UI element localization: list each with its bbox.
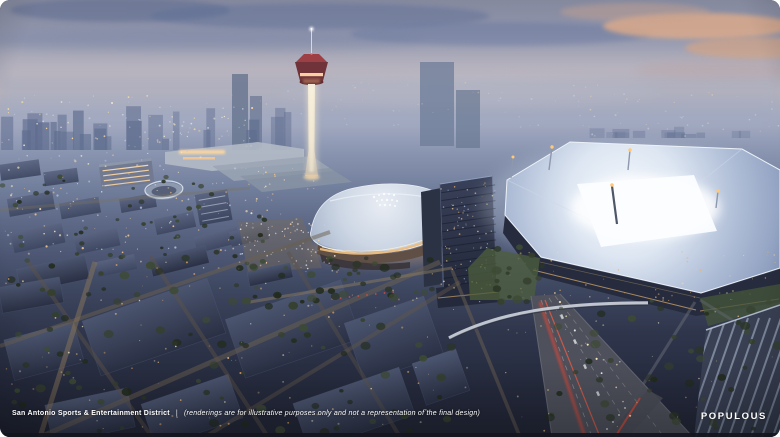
rendering-image: San Antonio Sports & Entertainment Distr… <box>0 0 780 437</box>
district-rendering-scene <box>0 0 780 437</box>
caption-disclaimer: (renderings are for illustrative purpose… <box>184 410 480 417</box>
bottom-edge-bar <box>0 433 780 437</box>
caption-bar: San Antonio Sports & Entertainment Distr… <box>12 410 480 417</box>
caption-separator: | <box>176 410 178 417</box>
bottom-shade <box>0 360 780 437</box>
populous-logo: POPULOUS <box>701 411 767 422</box>
district-title: San Antonio Sports & Entertainment Distr… <box>12 410 170 417</box>
